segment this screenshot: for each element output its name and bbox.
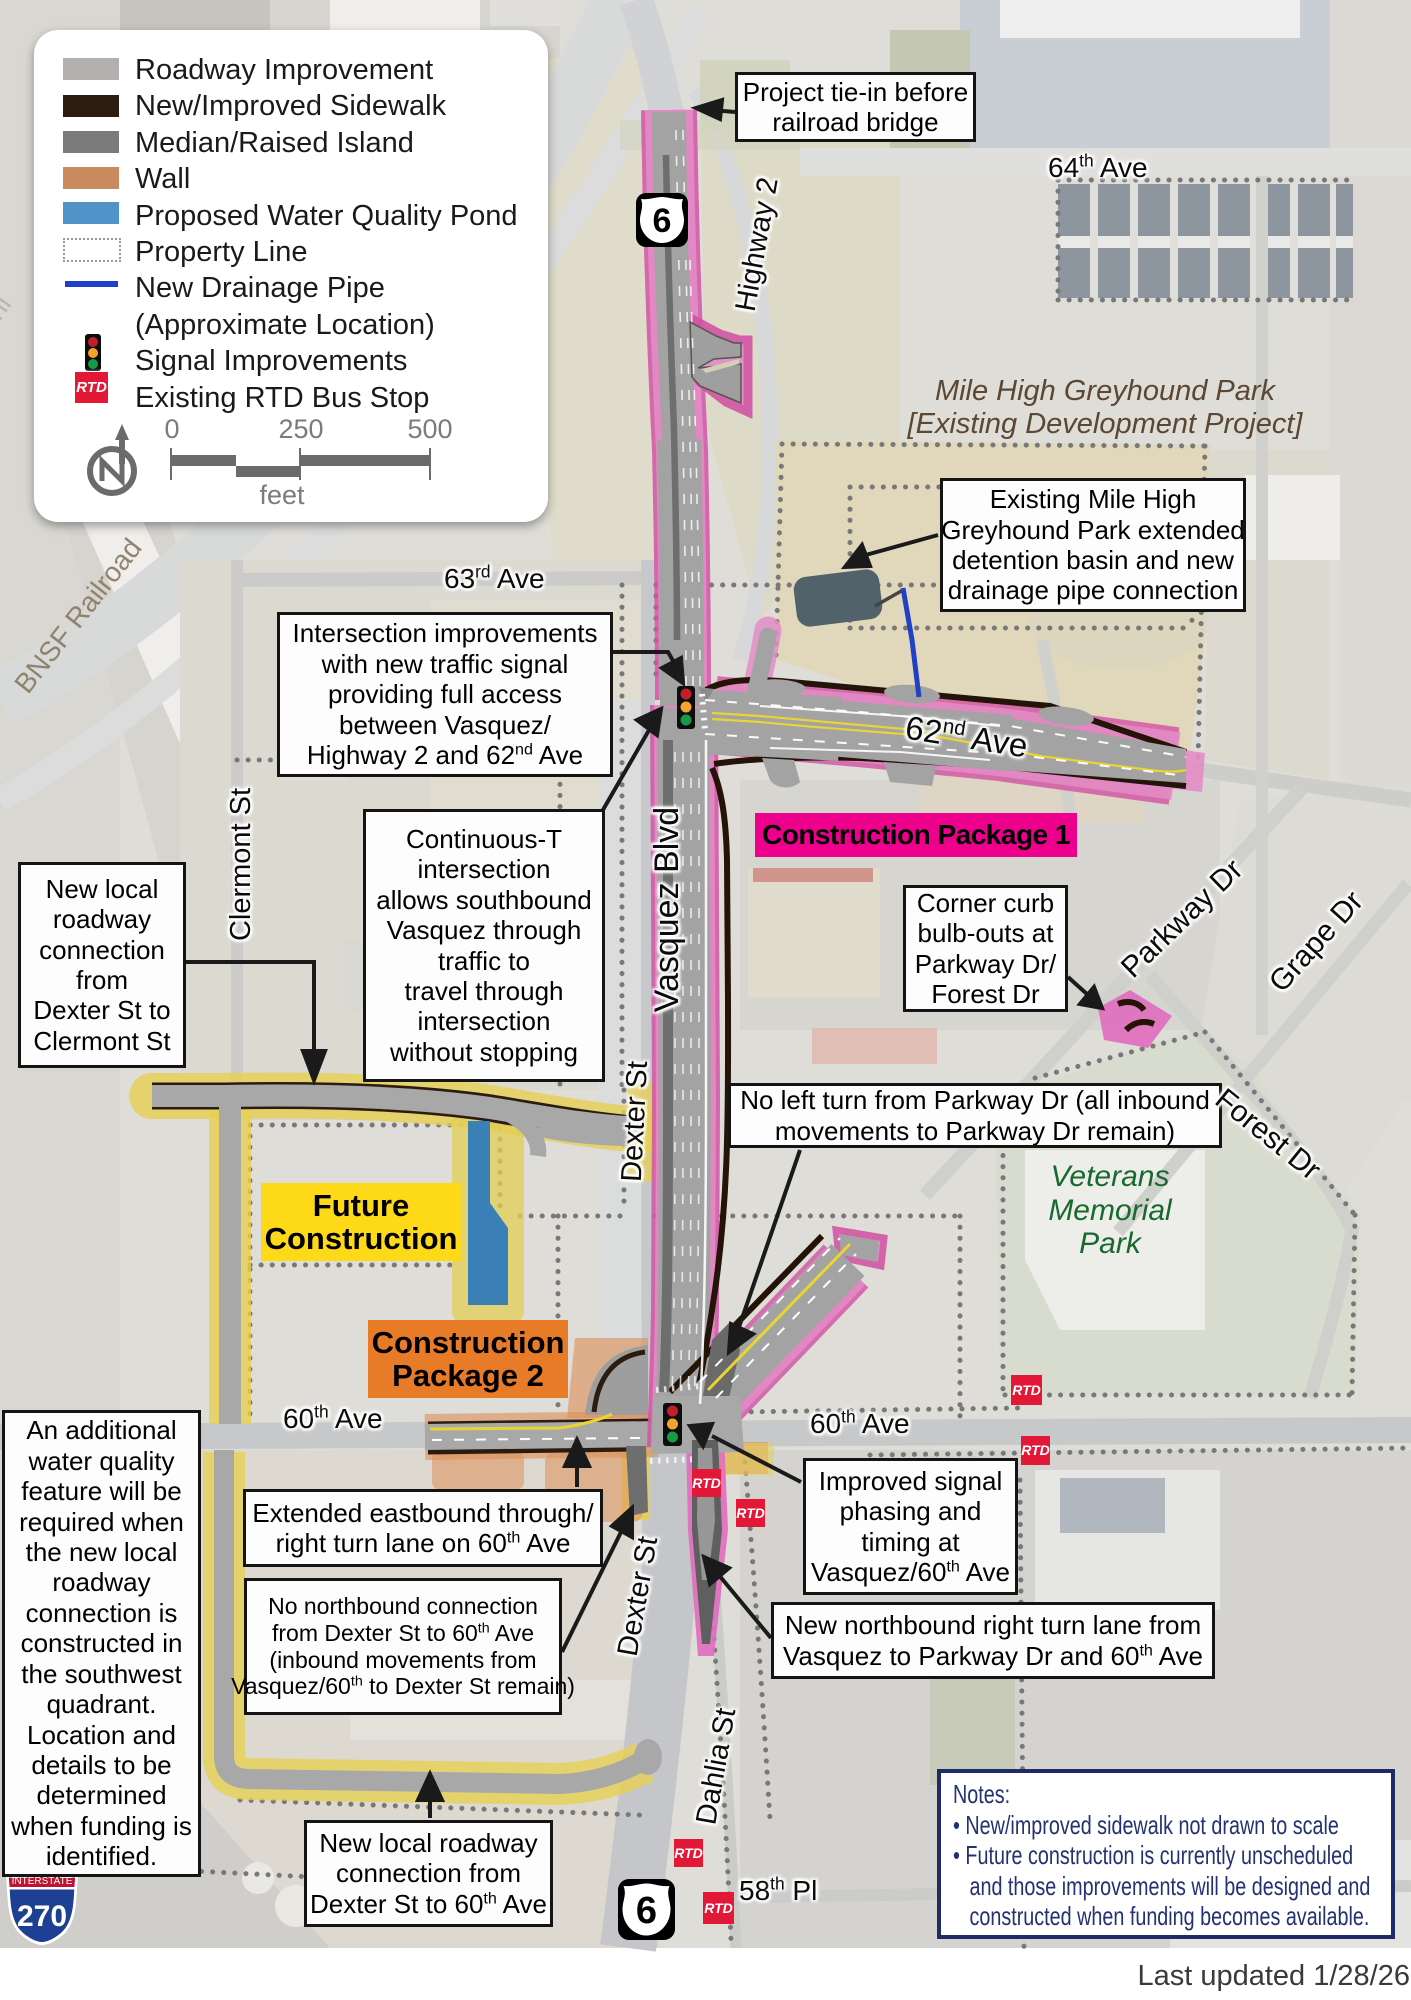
svg-text:250: 250 — [278, 414, 323, 444]
svg-text:500: 500 — [407, 414, 452, 444]
svg-text:270: 270 — [17, 1900, 67, 1933]
svg-text:RTD: RTD — [692, 1475, 721, 1491]
svg-text:RTD: RTD — [736, 1505, 765, 1521]
svg-text:0: 0 — [164, 414, 179, 444]
svg-text:RTD: RTD — [1012, 1382, 1041, 1398]
svg-text:RTD: RTD — [674, 1845, 703, 1861]
svg-text:RTD: RTD — [1021, 1442, 1050, 1458]
svg-text:6: 6 — [636, 1890, 657, 1932]
svg-text:feet: feet — [259, 480, 305, 510]
svg-text:INTERSTATE: INTERSTATE — [12, 1876, 73, 1887]
svg-text:RTD: RTD — [704, 1900, 733, 1916]
svg-text:6: 6 — [653, 202, 672, 240]
